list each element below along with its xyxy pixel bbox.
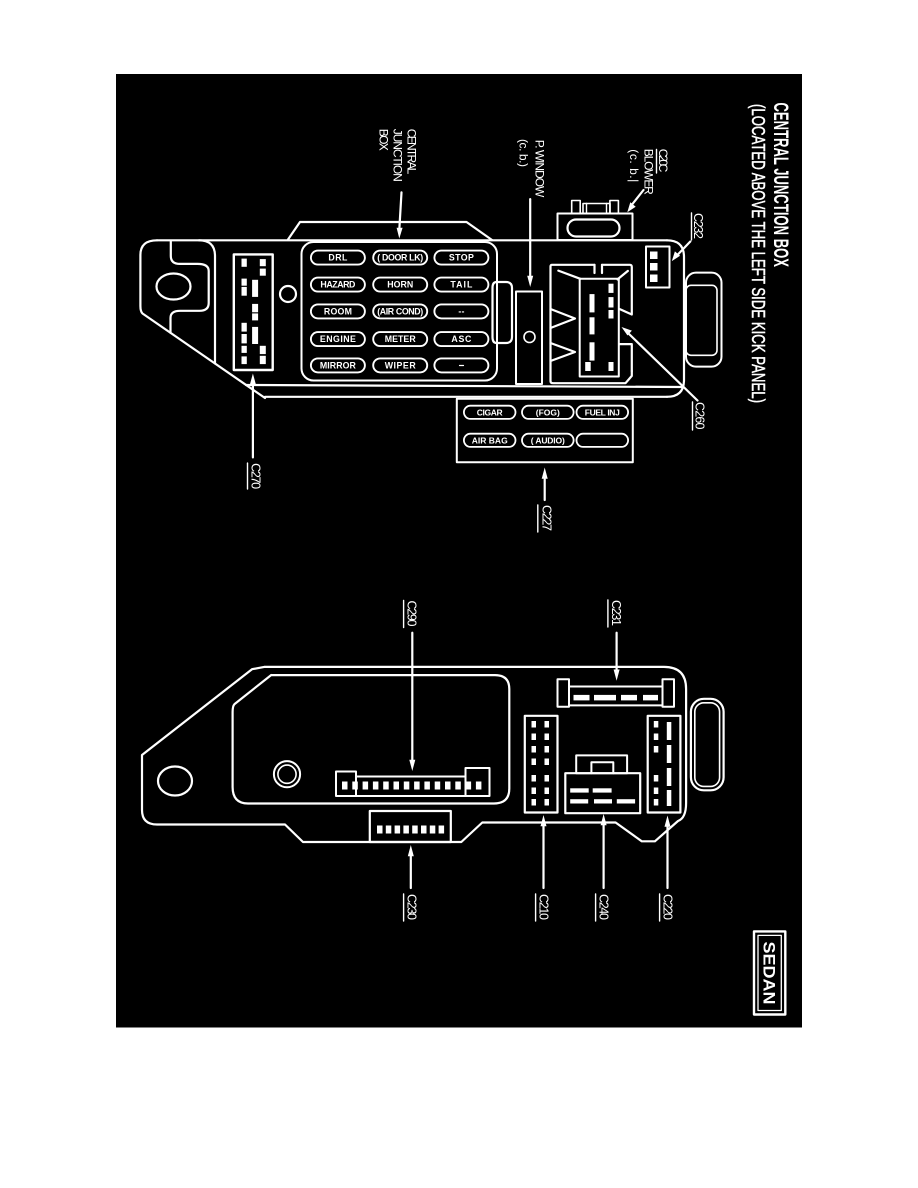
svg-text:C230: C230 xyxy=(405,894,419,920)
svg-text:WIPER: WIPER xyxy=(385,360,417,370)
svg-text:P. WINDOW: P. WINDOW xyxy=(533,140,547,198)
svg-text:MIRROR: MIRROR xyxy=(320,360,357,370)
svg-text:( AUDIO): ( AUDIO) xyxy=(531,435,565,445)
svg-text:--: -- xyxy=(458,306,464,316)
svg-text:C227: C227 xyxy=(540,505,554,531)
svg-text:HAZARD: HAZARD xyxy=(320,280,355,290)
svg-text:C20C: C20C xyxy=(656,149,670,173)
svg-text:METER: METER xyxy=(385,334,417,344)
svg-text:CIGAR: CIGAR xyxy=(477,407,503,417)
svg-text:ASC: ASC xyxy=(451,334,472,344)
svg-text:TAIL: TAIL xyxy=(450,280,473,290)
svg-text:(c. b.|: (c. b.| xyxy=(627,149,641,182)
svg-text:CENTRAL JUNCTION BOX: CENTRAL JUNCTION BOX xyxy=(769,103,793,268)
svg-text:BOX: BOX xyxy=(377,129,391,151)
svg-text:C210: C210 xyxy=(537,894,551,920)
svg-text:C220: C220 xyxy=(661,894,675,920)
svg-text:(LOCATED ABOVE THE LEFT SIDE K: (LOCATED ABOVE THE LEFT SIDE KICK PANEL) xyxy=(748,104,768,403)
svg-text:(c. b.): (c. b.) xyxy=(517,139,531,167)
svg-text:SEDAN: SEDAN xyxy=(760,942,779,1005)
svg-text:C231: C231 xyxy=(609,600,623,626)
svg-text:AIR BAG: AIR BAG xyxy=(472,435,508,445)
svg-text:C240: C240 xyxy=(597,894,611,920)
svg-text:C260: C260 xyxy=(693,402,707,430)
svg-text:STOP: STOP xyxy=(449,253,474,263)
svg-text:DRL: DRL xyxy=(328,253,348,263)
svg-text:FUEL INJ: FUEL INJ xyxy=(585,407,620,417)
svg-text:HORN: HORN xyxy=(387,280,413,290)
svg-text:C290: C290 xyxy=(405,601,419,627)
svg-text:BLOWER: BLOWER xyxy=(642,149,656,195)
svg-text:CENTRAL: CENTRAL xyxy=(405,129,419,175)
svg-text:ROOM: ROOM xyxy=(324,306,352,316)
svg-text:(AIR COND): (AIR COND) xyxy=(377,306,423,316)
svg-text:C232: C232 xyxy=(691,213,705,239)
svg-text:( DOOR LK): ( DOOR LK) xyxy=(377,253,423,263)
svg-text:ENGINE: ENGINE xyxy=(320,334,356,344)
svg-text:(FOG): (FOG) xyxy=(536,407,560,417)
svg-text:JUNCTION: JUNCTION xyxy=(391,129,405,182)
svg-text:C270: C270 xyxy=(249,463,263,489)
